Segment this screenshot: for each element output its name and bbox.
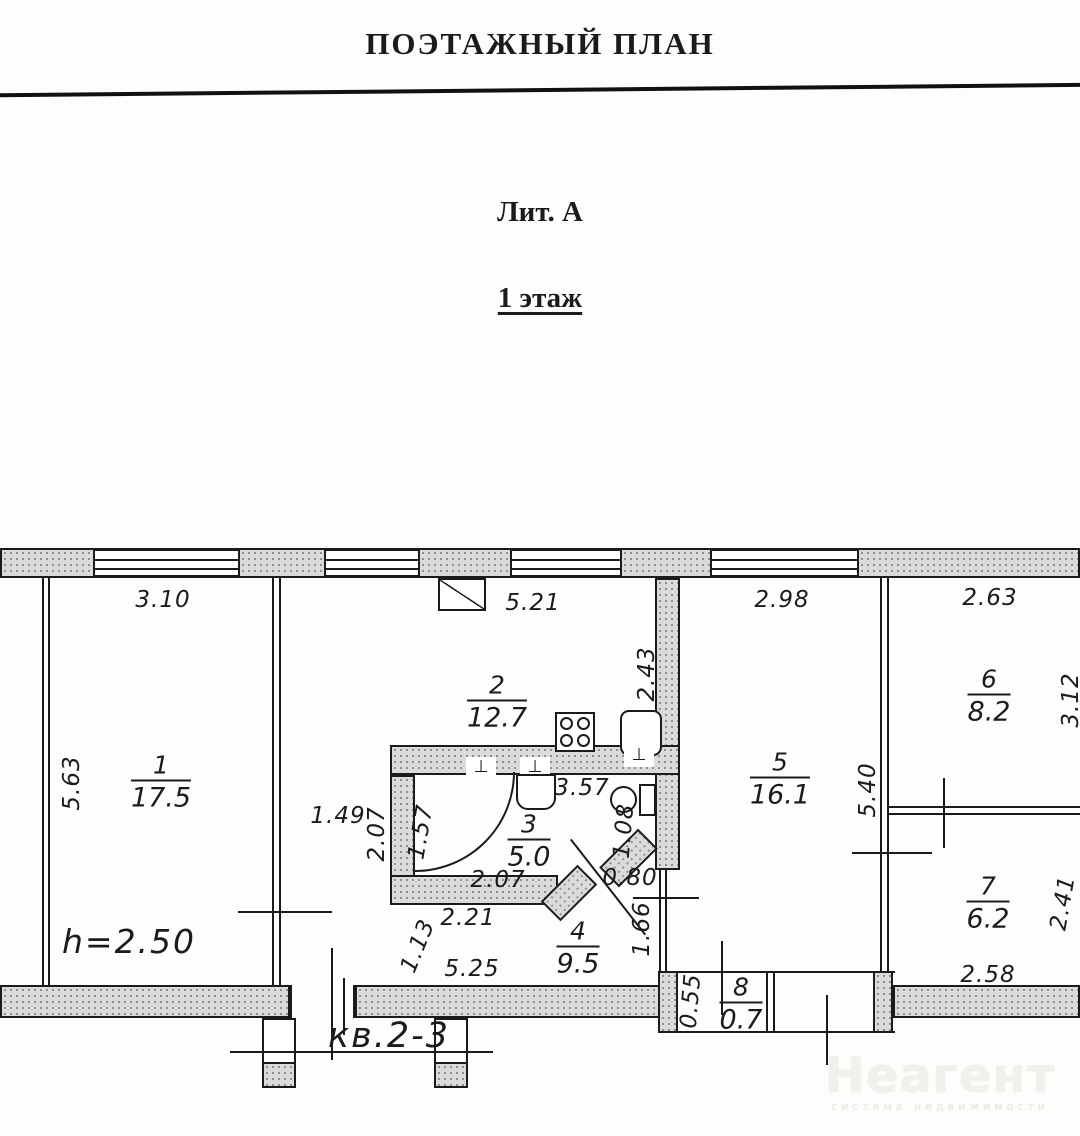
porch-door-leaf (826, 995, 828, 1065)
bathroom-wall-chamfer (541, 865, 598, 922)
dimension-label: 2.63 (962, 585, 1017, 611)
wall-pier (620, 548, 712, 578)
door-mark-room6 (943, 778, 945, 848)
burner-icon (577, 734, 590, 747)
wall-pier (418, 548, 512, 578)
window (512, 548, 620, 578)
dimension-label: 2.41 (1045, 874, 1080, 933)
room-label-3: 35.0 (508, 811, 551, 872)
dimension-label: 2.43 (634, 646, 660, 701)
room-label-8: 80.7 (720, 974, 763, 1035)
toilet-tank-icon (639, 784, 656, 816)
wall-pier (873, 971, 893, 1033)
wall-room1-room2 (272, 578, 281, 985)
exterior-wall-bottom (0, 985, 290, 1018)
watermark-tagline: система недвижимости (810, 1100, 1070, 1113)
room-area: 6.2 (967, 903, 1010, 934)
liter-label: Лит. А (0, 196, 1080, 229)
dimension-label: 5.40 (855, 762, 881, 817)
wall-room6-room7 (889, 806, 1080, 815)
room-area: 12.7 (467, 702, 527, 733)
window (326, 548, 418, 578)
dimension-label: 3.12 (1058, 672, 1080, 727)
wall-room5-room67 (880, 578, 889, 985)
window (712, 548, 857, 578)
dimension-label: 5.21 (505, 590, 560, 616)
room-label-1: 117.5 (131, 752, 191, 813)
watermark-brand: Неагент (810, 1048, 1070, 1104)
room-number: 8 (720, 974, 763, 1004)
exterior-wall-left (42, 578, 50, 985)
dimension-label: 3.57 (554, 775, 609, 801)
room-label-6: 68.2 (968, 666, 1011, 727)
room-label-2: 212.7 (467, 672, 527, 733)
wall-pier (238, 548, 326, 578)
dimension-label: 2.21 (440, 905, 495, 931)
window (95, 548, 238, 578)
room-label-5: 516.1 (750, 749, 810, 810)
watermark: Неагент система недвижимости (810, 1048, 1070, 1113)
vestibule-wall-bottom (658, 1031, 895, 1033)
room-number: 4 (557, 918, 600, 948)
vestibule-divider-wall (766, 973, 775, 1031)
room-area: 0.7 (720, 1004, 763, 1035)
door-mark-hall-room5 (633, 897, 699, 899)
room-number: 6 (968, 666, 1011, 696)
wall-pier (0, 548, 95, 578)
exterior-wall-bottom (893, 985, 1080, 1018)
dimension-label: 1.49 (310, 803, 365, 829)
dimension-label: 0.80 (602, 865, 657, 891)
room-area: 8.2 (968, 696, 1011, 727)
door-jamb (353, 985, 355, 1018)
room-number: 5 (750, 749, 810, 779)
dimension-label: 0.55 (676, 972, 707, 1029)
dimension-label: 1.08 (609, 802, 640, 859)
floor-plan-page: ПОЭТАЖНЫЙ ПЛАН Лит. А 1 этаж ⊥ ⊥ ⊥ (0, 0, 1080, 1136)
room-number: 3 (508, 811, 551, 841)
vent-shaft-icon (438, 578, 486, 611)
sink-icon (516, 774, 556, 810)
dimension-label: 2.98 (754, 587, 809, 613)
door-mark-room1 (238, 911, 332, 913)
header-divider (0, 83, 1080, 98)
wall-hall-room5 (659, 870, 667, 985)
room-label-7: 76.2 (967, 873, 1010, 934)
door-mark-room7 (852, 852, 932, 854)
dimension-label: 5.25 (444, 956, 499, 982)
wall-pier (857, 548, 1080, 578)
apartment-label: кв.2-3 (328, 1016, 450, 1056)
dimension-label: 1.13 (396, 916, 441, 977)
dimension-label: 5.63 (59, 755, 85, 810)
tap-icon: ⊥ (466, 757, 496, 777)
dimension-label: 2.58 (960, 962, 1015, 988)
dimension-label: 3.10 (135, 587, 190, 613)
column-footing (262, 1062, 296, 1088)
exterior-wall-bottom (355, 985, 660, 1018)
tap-icon: ⊥ (624, 745, 654, 767)
floor-label: 1 этаж (0, 282, 1080, 315)
burner-icon (560, 734, 573, 747)
room-number: 7 (967, 873, 1010, 903)
dimension-label: 2.07 (364, 806, 390, 861)
column-footing (434, 1062, 468, 1088)
room-area: 9.5 (557, 948, 600, 979)
stove-icon (555, 712, 595, 752)
room-label-4: 49.5 (557, 918, 600, 979)
room-area: 16.1 (750, 779, 810, 810)
room-area: 5.0 (508, 841, 551, 872)
room-number: 1 (131, 752, 191, 782)
page-title: ПОЭТАЖНЫЙ ПЛАН (0, 26, 1080, 62)
burner-icon (560, 717, 573, 730)
dimension-label: 1.66 (629, 901, 655, 956)
ceiling-height-note: h=2.50 (62, 922, 196, 961)
room-number: 2 (467, 672, 527, 702)
porch-step-line (230, 1051, 493, 1053)
door-jamb (290, 985, 292, 1018)
burner-icon (577, 717, 590, 730)
room-area: 17.5 (131, 782, 191, 813)
porch-column (262, 1018, 296, 1088)
